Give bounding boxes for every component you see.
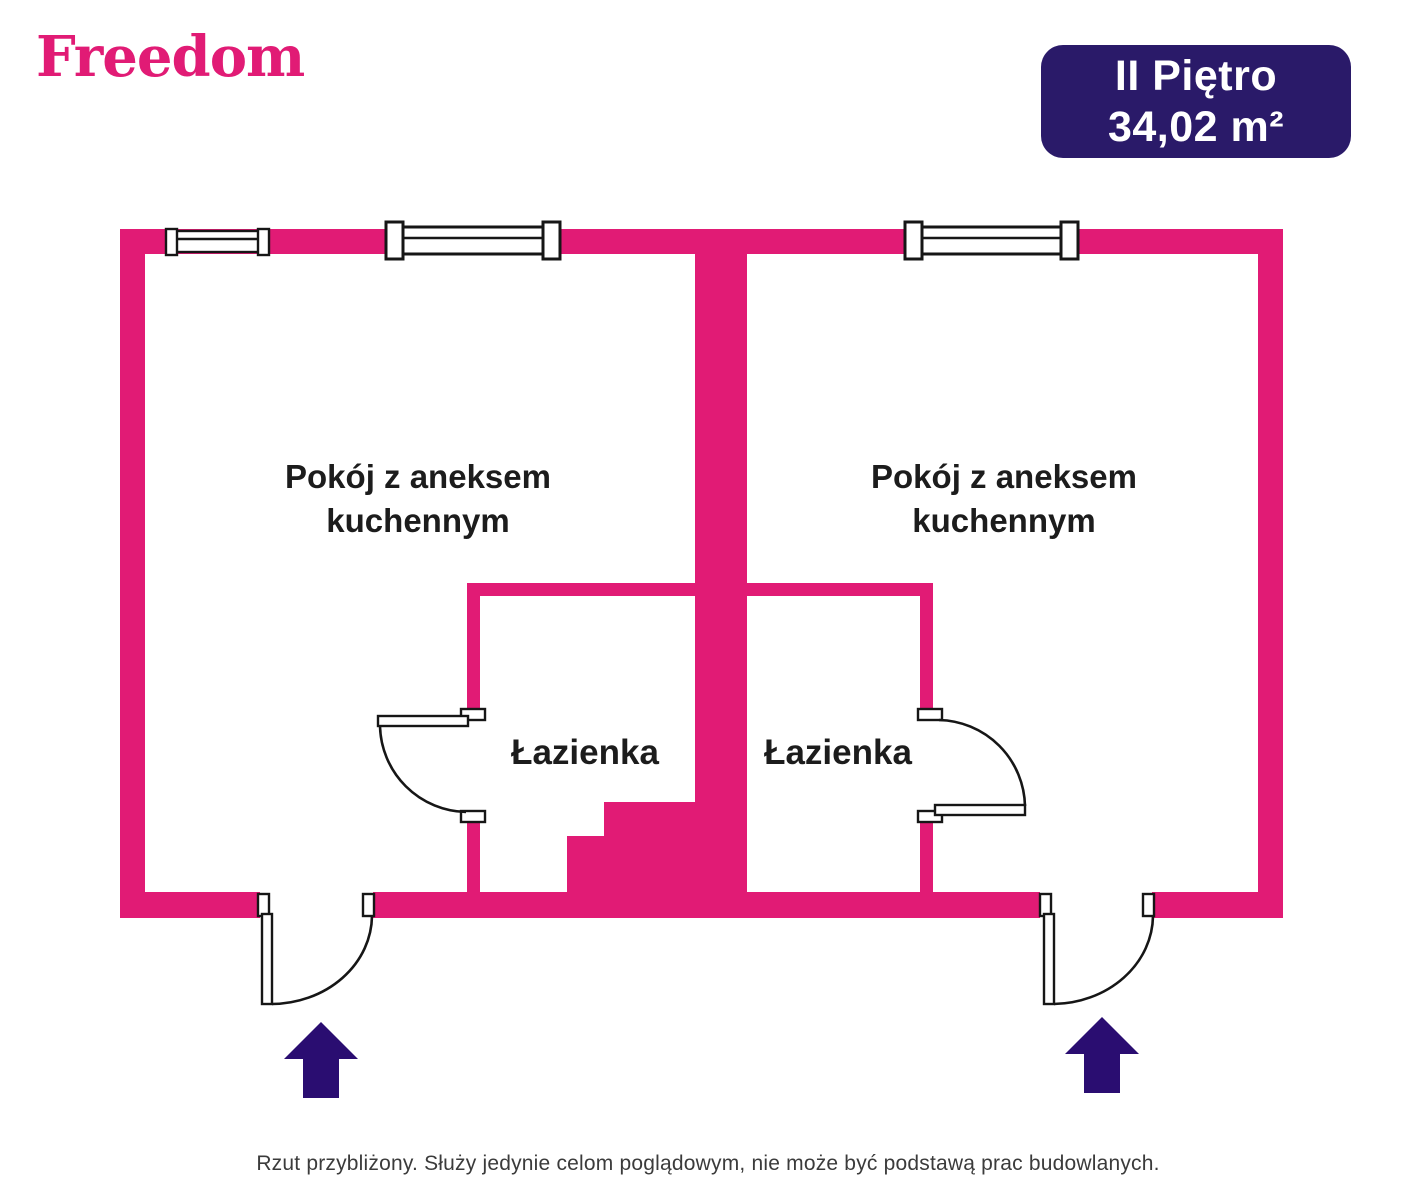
bathroom-label-left: Łazienka <box>475 733 695 773</box>
entrance-door-right <box>1040 894 1154 1004</box>
entrance-arrow-left-icon <box>284 1022 358 1098</box>
bathroom-label-right: Łazienka <box>728 733 948 773</box>
window-small-left-unit <box>166 229 269 255</box>
entrance-arrow-right-icon <box>1065 1017 1139 1093</box>
bathroom-door-left <box>378 709 485 822</box>
window-large-left-unit <box>386 222 560 259</box>
dividing-wall <box>695 229 747 918</box>
floor-plan-drawing <box>0 0 1416 1200</box>
room-label-left: Pokój z aneksem kuchennym <box>248 455 588 543</box>
room-label-right: Pokój z aneksem kuchennym <box>834 455 1174 543</box>
entrance-door-left <box>258 894 374 1004</box>
floor-plan-page: Freedom II Piętro 34,02 m² <box>0 0 1416 1200</box>
window-right-unit <box>905 222 1078 259</box>
disclaimer-text: Rzut przybliżony. Służy jedynie celom po… <box>0 1152 1416 1176</box>
